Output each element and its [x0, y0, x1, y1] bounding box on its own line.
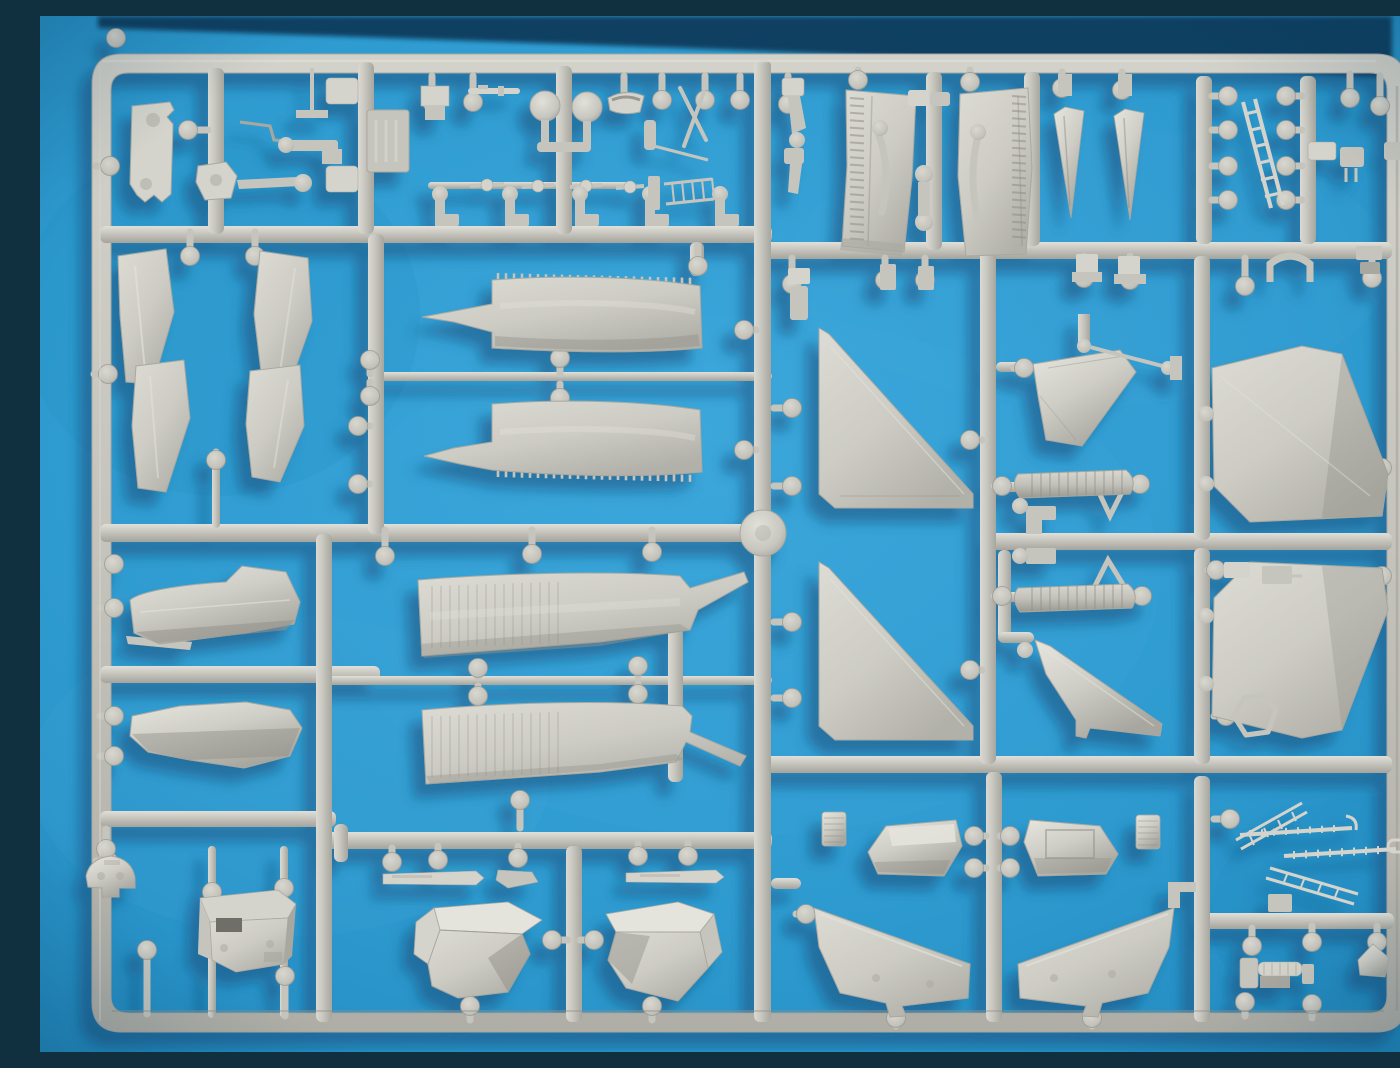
part-intake-scoop [608, 92, 644, 113]
part-row2-small-parts-shape [880, 264, 896, 290]
part-round-discs-shape [541, 120, 549, 144]
sprue-gate-peg [1000, 859, 1020, 878]
part-ramp-mid-bits-shape [915, 165, 933, 183]
part-row2-small-parts-shape [1114, 274, 1146, 284]
peg-head [105, 555, 124, 574]
peg-head [181, 247, 200, 266]
part-outer-wing-lower-shape [1198, 608, 1214, 624]
peg-head [993, 477, 1012, 496]
part-spike-fin-1-shape [1058, 74, 1072, 96]
peg-head [1219, 121, 1238, 140]
part-notched-plate-shape [140, 178, 152, 190]
part-intake-ramp-right-shape-rib [1012, 185, 1026, 186]
part-outer-wing-upper-shape [1198, 476, 1214, 492]
part-square-bits-shape [425, 106, 445, 120]
part-intake-ramp-right-shape-rib [1012, 192, 1026, 193]
part-t-bracket-right-shape [1168, 882, 1196, 892]
part-row2-small-parts-shape [788, 268, 810, 284]
part-pylon-rail-right-shape [640, 874, 680, 877]
part-intake-ramp-left-shape-rib [850, 172, 864, 173]
part-l-feet-row-shape [435, 214, 459, 226]
part-z-rod-shape [1170, 356, 1182, 380]
sprue-rod [326, 676, 772, 685]
peg-head [469, 659, 488, 678]
part-ramp-actuator-arms-shape [872, 120, 888, 136]
sprue-gate-peg [469, 686, 488, 706]
peg-head [643, 543, 662, 562]
peg-head [1207, 561, 1226, 580]
sprue-gate-peg [993, 587, 1012, 606]
peg-head [543, 931, 562, 950]
part-mini-ladder-shape [648, 176, 660, 210]
sprue-runner [756, 756, 1392, 773]
part-topleft-small-parts-shape [326, 78, 358, 104]
peg-head [735, 321, 754, 340]
part-intake-ramp-left-shape-rib [850, 179, 864, 180]
sprue-gate-peg [469, 659, 488, 679]
part-round-discs-shape [572, 92, 602, 122]
peg-head [1303, 933, 1322, 952]
part-bulkhead-dome-shape [104, 860, 120, 865]
sprue-runner [998, 632, 1034, 643]
sprue-runner [1194, 548, 1210, 764]
part-l-feet-row-shape [645, 214, 669, 226]
peg-head [1277, 121, 1296, 140]
sprue-rod [370, 372, 772, 381]
part-seat-detail-part-shape [1302, 964, 1314, 984]
peg-head [1236, 993, 1255, 1012]
peg-head [783, 477, 802, 496]
part-row2-small-parts-shape [1360, 262, 1380, 274]
part-notched-plate [130, 102, 174, 202]
part-jet-pipe-2-shape [1026, 548, 1056, 564]
part-ribbed-side-boxes-shape [1136, 815, 1160, 849]
sprue-runner [316, 534, 332, 1022]
sprue-scene-canvas [40, 16, 1400, 1052]
sprue-runner [566, 846, 582, 1022]
sprue-runner [100, 226, 772, 243]
peg-head [383, 853, 402, 872]
part-spike-fin-2-shape [1118, 74, 1132, 96]
part-topleft-small-parts-shape [326, 166, 358, 192]
peg-head [1341, 89, 1360, 108]
peg-head [679, 847, 698, 866]
part-torque-links-shape [789, 132, 805, 148]
peg-head [783, 613, 802, 632]
peg-head [1371, 97, 1390, 116]
peg-head [276, 967, 295, 986]
part-center-node-boss-shape [755, 525, 771, 541]
sprue-runner [100, 811, 336, 827]
part-intake-ramp-right-shape-rib [1012, 96, 1026, 97]
part-row2-small-parts-shape [1076, 254, 1098, 274]
part-row2-small-parts-shape [1356, 246, 1382, 260]
peg-head [629, 657, 648, 676]
part-cockpit-tub-shape [220, 944, 228, 952]
sprue-gate-peg [107, 29, 126, 48]
part-outer-wing-upper-shape [1198, 406, 1214, 422]
peg-head [585, 931, 604, 950]
peg-head [105, 707, 124, 726]
part-gun-rod-shape [498, 86, 504, 96]
part-far-right-top-bits-shape [1384, 142, 1400, 160]
sprue-gate-peg [1014, 359, 1034, 378]
model-sprue-photo: Light grey injection-moulded model kit s… [40, 16, 1400, 1052]
part-jet-pipe-1-shape [1026, 518, 1042, 534]
part-pylon-rail-left-shape [392, 875, 432, 878]
part-intake-ramp-left-shape-rib [850, 128, 864, 129]
part-l-feet-row-shape [715, 214, 739, 226]
peg-head [1219, 157, 1238, 176]
part-folding-ladder-c-shape [1268, 894, 1292, 912]
peg-head [1219, 87, 1238, 106]
sprue-runner [771, 878, 801, 889]
part-torque-links-shape [782, 78, 804, 96]
peg-head [1277, 87, 1296, 106]
part-far-right-top-bits-shape [1340, 147, 1364, 167]
part-row2-small-parts-shape [918, 266, 934, 290]
peg-head [509, 849, 528, 868]
part-intake-ramp-left [840, 90, 916, 256]
peg-head [99, 365, 118, 384]
part-topleft-small-parts-shape [294, 174, 312, 192]
peg-head [961, 431, 980, 450]
peg-head [965, 827, 984, 846]
part-swept-panel-right-shape [1050, 974, 1058, 982]
sprue-runner [986, 772, 1002, 1022]
sprue-gate-peg [1000, 827, 1020, 846]
part-ribbed-side-boxes-shape [822, 812, 846, 846]
peg-head [1236, 277, 1255, 296]
part-row2-small-parts-shape [1072, 272, 1102, 282]
part-round-discs-shape [537, 142, 591, 152]
part-bulkhead-dome-shape [97, 872, 105, 880]
part-intake-ramp-left-shape-rib [850, 157, 864, 158]
part-square-bits-shape [421, 86, 449, 106]
peg-head [376, 547, 395, 566]
peg-head [629, 685, 648, 704]
part-embossed-plate [367, 110, 409, 172]
peg-head [461, 997, 480, 1016]
part-ramp-mid-bits-shape [908, 90, 928, 106]
part-round-discs-shape [530, 91, 560, 121]
part-intake-ramp-right-shape-rib [1012, 103, 1026, 104]
peg-head [105, 599, 124, 618]
peg-head [464, 93, 483, 112]
part-intake-ramp-right-shape-rib [1012, 200, 1026, 201]
peg-head [1243, 937, 1262, 956]
part-intake-ramp-right-shape-rib [1012, 163, 1026, 164]
peg-head [101, 157, 120, 176]
part-l-feet-row-shape [575, 214, 599, 226]
part-ramp-mid-bits-shape [918, 182, 930, 216]
part-intake-ramp-right-shape-rib [1012, 170, 1026, 171]
part-intake-ramp-right-shape-rib [1012, 229, 1026, 230]
part-right-col-mid-bits-shape [1262, 566, 1292, 584]
part-seat-detail-part-shape [1260, 976, 1290, 988]
part-torque-links-shape [784, 148, 804, 164]
part-l-feet-row-shape [505, 214, 529, 226]
peg-head [105, 747, 124, 766]
part-topleft-small-parts-shape [278, 137, 294, 153]
peg-head [961, 73, 980, 92]
peg-head [643, 997, 662, 1016]
sprue-runner [980, 250, 996, 764]
part-windshield-right-shape [1034, 858, 1112, 874]
peg-head [961, 661, 980, 680]
part-intake-ramp-left-shape-rib [850, 142, 864, 143]
peg-head [797, 905, 816, 924]
peg-head [629, 847, 648, 866]
part-cockpit-tub-shape [264, 952, 282, 962]
peg-head [1277, 157, 1296, 176]
part-intake-ramp-left-shape-rib [850, 224, 864, 225]
part-cockpit-tub [198, 890, 296, 972]
part-round-discs-shape [583, 121, 591, 145]
part-intake-ramp-left-shape-rib [850, 135, 864, 136]
part-swept-fin-mid-shape [1017, 642, 1033, 658]
part-intake-ramp-left-shape-rib [850, 113, 864, 114]
part-intake-ramp-left-shape-rib [850, 231, 864, 232]
part-intake-ramp-left-shape [842, 90, 916, 252]
part-intake-ramp-left-shape-rib [850, 202, 864, 203]
part-embossed-plate-shape [367, 110, 409, 172]
sprue-runner [1196, 76, 1212, 244]
peg-head [965, 859, 984, 878]
peg-head [783, 399, 802, 418]
sprue-gate-peg [207, 451, 226, 470]
peg-head [1219, 191, 1238, 210]
peg-head [653, 91, 672, 110]
part-right-col-mid-bits-shape [1224, 562, 1250, 578]
part-axle-crosses-shape [532, 180, 544, 192]
peg-head [1015, 359, 1034, 378]
sprue-gate-peg [849, 70, 868, 90]
sprue-runner [318, 832, 772, 849]
part-intake-ramp-left-shape-rib [850, 120, 864, 121]
sprue-gate-peg [629, 684, 648, 704]
part-row2-small-parts-shape [1118, 256, 1140, 276]
part-intake-ramp-right-shape-rib [1012, 222, 1026, 223]
peg-head [429, 851, 448, 870]
sprue-gate-peg [1207, 561, 1226, 580]
peg-head [731, 91, 750, 110]
sprue-runner [334, 824, 348, 862]
peg-head [735, 441, 754, 460]
peg-head [511, 791, 530, 810]
part-jet-pipe-2-shape [1012, 548, 1028, 564]
part-seat-detail-part-shape [1240, 958, 1258, 988]
peg-head [1001, 859, 1020, 878]
part-intake-ramp-right [958, 88, 1032, 256]
peg-head [207, 451, 226, 470]
part-jet-pipe-1-shape [1026, 506, 1056, 520]
part-gun-rod-shape [478, 85, 488, 89]
sprue-runner [208, 68, 224, 234]
part-intake-ramp-left-shape-rib [850, 187, 864, 188]
peg-head [349, 475, 368, 494]
sprue-runner [1198, 913, 1394, 929]
part-center-node-boss [755, 525, 771, 541]
peg-head [783, 689, 802, 708]
peg-head [469, 687, 488, 706]
sprue-runner [100, 524, 778, 542]
part-bulkhead-dome-shape [116, 872, 124, 880]
part-intake-ramp-left-shape-rib [850, 194, 864, 195]
part-outer-wing-lower-shape [1198, 676, 1214, 692]
part-topleft-small-parts-shape [210, 174, 222, 186]
peg-head [1001, 827, 1020, 846]
peg-head [361, 351, 380, 370]
part-intake-ramp-left-shape-rib [850, 165, 864, 166]
part-z-rod-shape [1077, 339, 1091, 353]
peg-head [849, 71, 868, 90]
sprue-gate-peg [993, 477, 1012, 496]
part-axle-crosses-shape [624, 181, 636, 193]
part-intake-ramp-left-shape-rib [850, 216, 864, 217]
part-gear-strut-links-shape [644, 120, 656, 150]
peg-head [349, 417, 368, 436]
sprue-runner [1194, 256, 1210, 540]
peg-head [179, 121, 198, 140]
part-intake-ramp-left-shape-rib [850, 98, 864, 99]
sprue-runner [980, 533, 1392, 550]
peg-head [523, 545, 542, 564]
sprue-gate-peg [629, 657, 648, 677]
peg-head [993, 587, 1012, 606]
part-cockpit-tub-shape [266, 940, 274, 948]
peg-head [107, 29, 126, 48]
part-ramp-actuator-arms-shape [970, 124, 986, 140]
peg-head [138, 941, 157, 960]
part-topleft-small-parts-shape [296, 110, 328, 118]
part-square-bits [421, 86, 449, 120]
part-axle-crosses-shape [481, 179, 493, 191]
part-intake-ramp-right-shape-rib [1012, 237, 1026, 238]
part-windshield-left-shape [874, 860, 950, 874]
part-intake-ramp-right-shape-rib [1012, 207, 1026, 208]
part-cockpit-tub-shape [216, 918, 242, 932]
part-intake-ramp-right-shape-rib [1012, 214, 1026, 215]
part-intake-ramp-left-shape-rib [850, 150, 864, 151]
part-gun-rod-shape [468, 88, 520, 94]
part-row2-small-parts-shape [790, 286, 808, 320]
part-notched-plate-shape [146, 113, 160, 127]
part-topleft-small-parts-shape [322, 149, 342, 164]
part-intake-ramp-left-shape-rib [850, 209, 864, 210]
peg-head [689, 257, 708, 276]
part-intake-ramp-right-shape-rib [1012, 177, 1026, 178]
part-swept-panel-left-shape [926, 980, 934, 988]
part-jet-pipe-1-shape [1012, 498, 1028, 514]
part-t-bracket-right-shape [1168, 892, 1180, 908]
peg-head [1221, 810, 1240, 829]
part-swept-panel-left-shape [872, 974, 880, 982]
part-swept-panel-right-shape [1108, 970, 1116, 978]
peg-head [361, 387, 380, 406]
sprue-gate-peg [796, 905, 816, 924]
part-intake-ramp-left-shape-rib [850, 105, 864, 106]
part-far-right-top-bits-shape [1308, 142, 1336, 160]
sprue-runner [1194, 776, 1210, 1022]
part-ramp-mid-bits-shape [930, 92, 950, 106]
